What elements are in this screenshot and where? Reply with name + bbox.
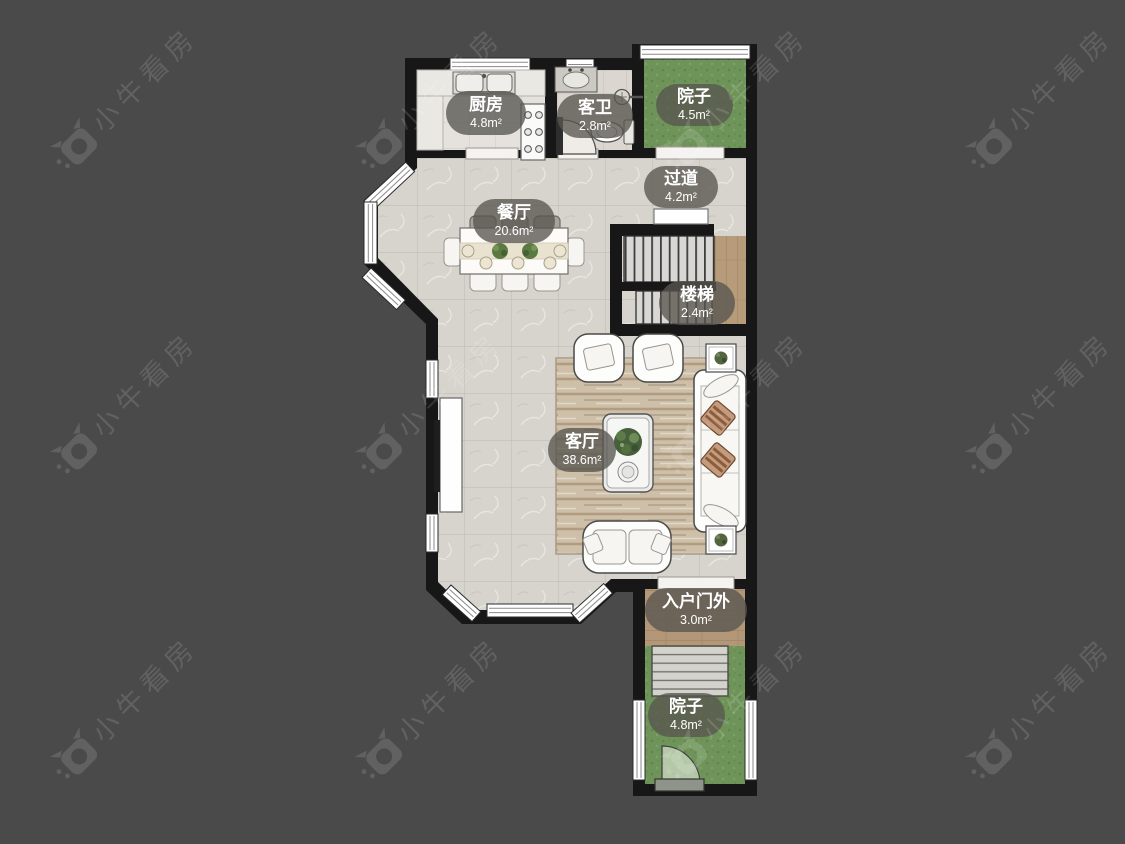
entry-door-threshold — [658, 577, 734, 589]
plant-icon — [614, 428, 642, 456]
kitchen-door-opening — [466, 148, 518, 159]
svg-text:4.8m²: 4.8m² — [470, 116, 502, 130]
plate — [544, 257, 556, 269]
room-label-bath: 客卫 2.8m² — [557, 94, 633, 138]
floorplan-page: 厨房 4.8m² 客卫 2.8m² 院子 4.5m² 过道 4.2m² 餐厅 2… — [0, 0, 1125, 844]
stairs-wall-bottom — [610, 324, 757, 336]
living-window-lower — [426, 514, 438, 552]
armchair — [574, 334, 624, 382]
stairs-upper-flight — [624, 236, 714, 282]
svg-text:3.0m²: 3.0m² — [680, 613, 712, 627]
svg-text:院子: 院子 — [669, 696, 703, 716]
bottom-bay-window-mid — [487, 604, 573, 617]
side-table — [706, 526, 736, 554]
svg-text:过道: 过道 — [664, 168, 698, 188]
svg-text:入户门外: 入户门外 — [662, 591, 730, 611]
svg-text:38.6m²: 38.6m² — [563, 453, 602, 467]
floorplan-svg: 厨房 4.8m² 客卫 2.8m² 院子 4.5m² 过道 4.2m² 餐厅 2… — [0, 0, 1125, 844]
svg-text:20.6m²: 20.6m² — [495, 224, 534, 238]
svg-text:院子: 院子 — [677, 86, 711, 106]
svg-text:2.4m²: 2.4m² — [681, 306, 713, 320]
svg-text:餐厅: 餐厅 — [497, 202, 531, 222]
dining-chair-left — [444, 238, 462, 266]
room-label-entry: 入户门外 3.0m² — [645, 588, 747, 632]
bath-sink — [555, 67, 597, 92]
yard-top-window — [640, 45, 750, 59]
room-label-living: 客厅 38.6m² — [548, 428, 616, 472]
svg-text:4.2m²: 4.2m² — [665, 190, 697, 204]
svg-text:客厅: 客厅 — [564, 431, 599, 451]
svg-text:2.8m²: 2.8m² — [579, 119, 611, 133]
room-label-corridor: 过道 4.2m² — [644, 166, 718, 208]
room-label-dining: 餐厅 20.6m² — [473, 199, 555, 243]
plate — [554, 245, 566, 257]
svg-text:客卫: 客卫 — [577, 97, 612, 117]
side-table — [706, 344, 736, 372]
svg-text:厨房: 厨房 — [469, 94, 503, 114]
svg-text:楼梯: 楼梯 — [680, 284, 714, 304]
table-runner — [460, 243, 568, 259]
svg-text:4.8m²: 4.8m² — [670, 718, 702, 732]
entry-steps — [652, 646, 728, 696]
room-label-kitchen: 厨房 4.8m² — [446, 91, 526, 135]
plate — [512, 257, 524, 269]
plate — [462, 245, 474, 257]
plate — [480, 257, 492, 269]
room-label-stairs: 楼梯 2.4m² — [659, 281, 735, 325]
bay-window-mid — [364, 202, 377, 264]
stairs-wall-top — [610, 224, 714, 236]
dining-chair-right — [566, 238, 584, 266]
tv-stand — [440, 398, 462, 512]
yard-bottom-window-left — [633, 700, 645, 780]
armchair — [633, 334, 683, 382]
hall-cabinet — [654, 209, 708, 224]
stairs-wall-left — [610, 224, 622, 336]
sofa-bottom — [582, 521, 672, 573]
tv-icon — [434, 420, 440, 492]
